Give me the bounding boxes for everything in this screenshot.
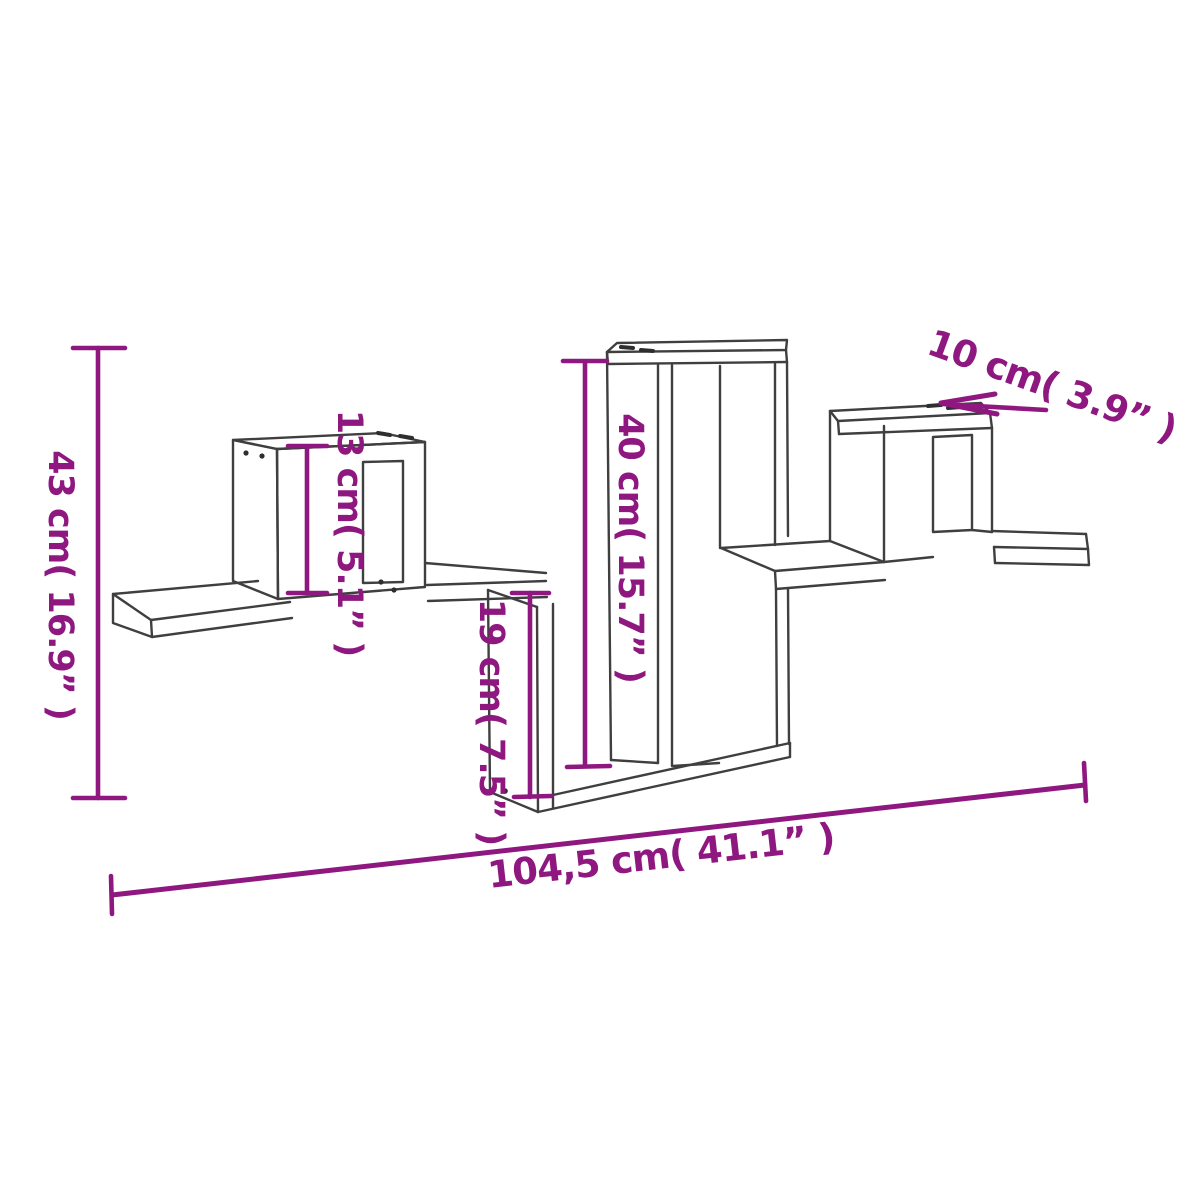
dimension-label-cube-height: 13 cm( 5.1” ) (329, 410, 369, 656)
shelf-cube-left (233, 433, 425, 599)
dimension-label-drop-height: 19 cm( 7.5” ) (471, 599, 511, 845)
shelf-cube-right (830, 403, 992, 562)
dimension-cube-height: 13 cm( 5.1” ) (288, 410, 369, 656)
dimension-label-total-width: 104,5 cm( 41.1” ) (485, 815, 836, 897)
shelf-bottom-board (538, 743, 790, 812)
shelf-board-right (992, 531, 1089, 565)
shelf-board-left (113, 581, 292, 637)
shelf-board-mid-right (721, 541, 885, 589)
dimension-label-inner-height: 40 cm( 15.7” ) (610, 413, 650, 683)
dimension-annotations: 43 cm( 16.9” ) 13 cm( 5.1” ) 40 cm( 15.7… (40, 321, 1182, 914)
dimension-label-depth: 10 cm( 3.9” ) (922, 321, 1182, 451)
dimension-total-height: 43 cm( 16.9” ) (40, 348, 125, 798)
dimension-label-total-height: 43 cm( 16.9” ) (40, 450, 80, 720)
shelf-line-art (113, 340, 1089, 812)
dimension-depth: 10 cm( 3.9” ) (922, 321, 1182, 451)
product-dimension-diagram: 43 cm( 16.9” ) 13 cm( 5.1” ) 40 cm( 15.7… (0, 0, 1200, 1200)
diagram-canvas: 43 cm( 16.9” ) 13 cm( 5.1” ) 40 cm( 15.7… (0, 0, 1200, 1200)
